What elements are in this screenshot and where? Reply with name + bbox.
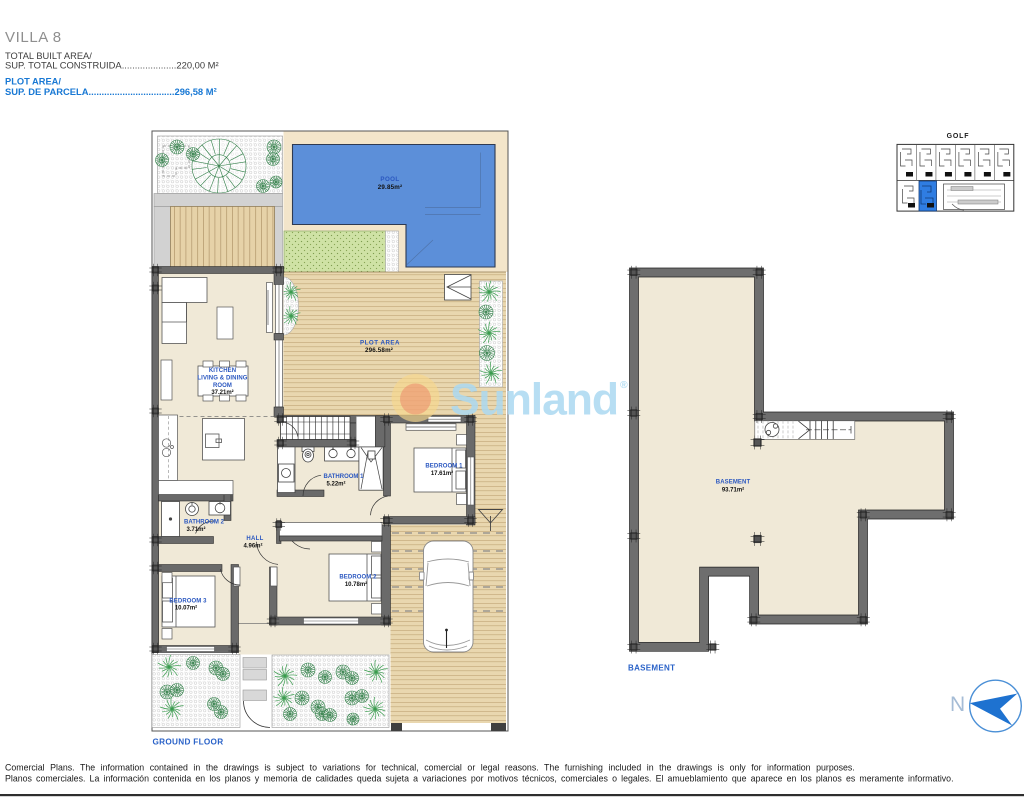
svg-text:SUP. DE PARCELA...............: SUP. DE PARCELA.........................… (5, 86, 217, 97)
svg-text:93.71m²: 93.71m² (722, 487, 744, 494)
svg-text:KITCHEN: KITCHEN (209, 368, 236, 374)
svg-text:10.07m²: 10.07m² (175, 605, 197, 612)
svg-text:37.21m²: 37.21m² (211, 389, 233, 396)
svg-text:3.71m²: 3.71m² (186, 526, 205, 533)
svg-text:BEDROOM 3: BEDROOM 3 (169, 599, 207, 605)
svg-text:BASEMENT: BASEMENT (716, 480, 751, 486)
svg-text:PLOT AREA/: PLOT AREA/ (5, 77, 61, 87)
svg-text:5.22m²: 5.22m² (326, 481, 345, 488)
svg-text:®: ® (620, 379, 628, 391)
svg-text:BEDROOM 1: BEDROOM 1 (425, 464, 463, 470)
svg-text:17.61m²: 17.61m² (431, 470, 453, 477)
svg-text:PLOT AREA: PLOT AREA (360, 340, 400, 347)
svg-text:HALL: HALL (246, 536, 263, 542)
svg-text:N: N (950, 693, 965, 716)
svg-text:LIVING & DINING: LIVING & DINING (197, 376, 247, 382)
svg-text:GOLF: GOLF (947, 133, 970, 140)
svg-text:BATHROOM 1: BATHROOM 1 (324, 474, 365, 480)
svg-text:BEDROOM 2: BEDROOM 2 (339, 575, 377, 581)
svg-text:10.78m²: 10.78m² (345, 581, 367, 588)
svg-text:SUP. TOTAL CONSTRUIDA.........: SUP. TOTAL CONSTRUIDA...................… (5, 60, 219, 71)
svg-text:BASEMENT: BASEMENT (628, 664, 675, 673)
svg-text:296.58m²: 296.58m² (365, 347, 393, 354)
svg-text:Planos comerciales. La informa: Planos comerciales. La información conte… (5, 774, 954, 784)
svg-text:29.85m²: 29.85m² (378, 184, 402, 191)
svg-text:GROUND FLOOR: GROUND FLOOR (153, 738, 224, 747)
svg-text:Comercial Plans. The informati: Comercial Plans. The information contain… (5, 763, 855, 773)
svg-text:4.96m²: 4.96m² (243, 543, 262, 550)
svg-text:Sunland: Sunland (450, 376, 618, 425)
svg-text:VILLA 8: VILLA 8 (5, 29, 62, 46)
svg-text:POOL: POOL (380, 176, 399, 183)
svg-text:ROOM: ROOM (213, 383, 232, 389)
svg-text:BATHROOM 2: BATHROOM 2 (184, 520, 225, 526)
